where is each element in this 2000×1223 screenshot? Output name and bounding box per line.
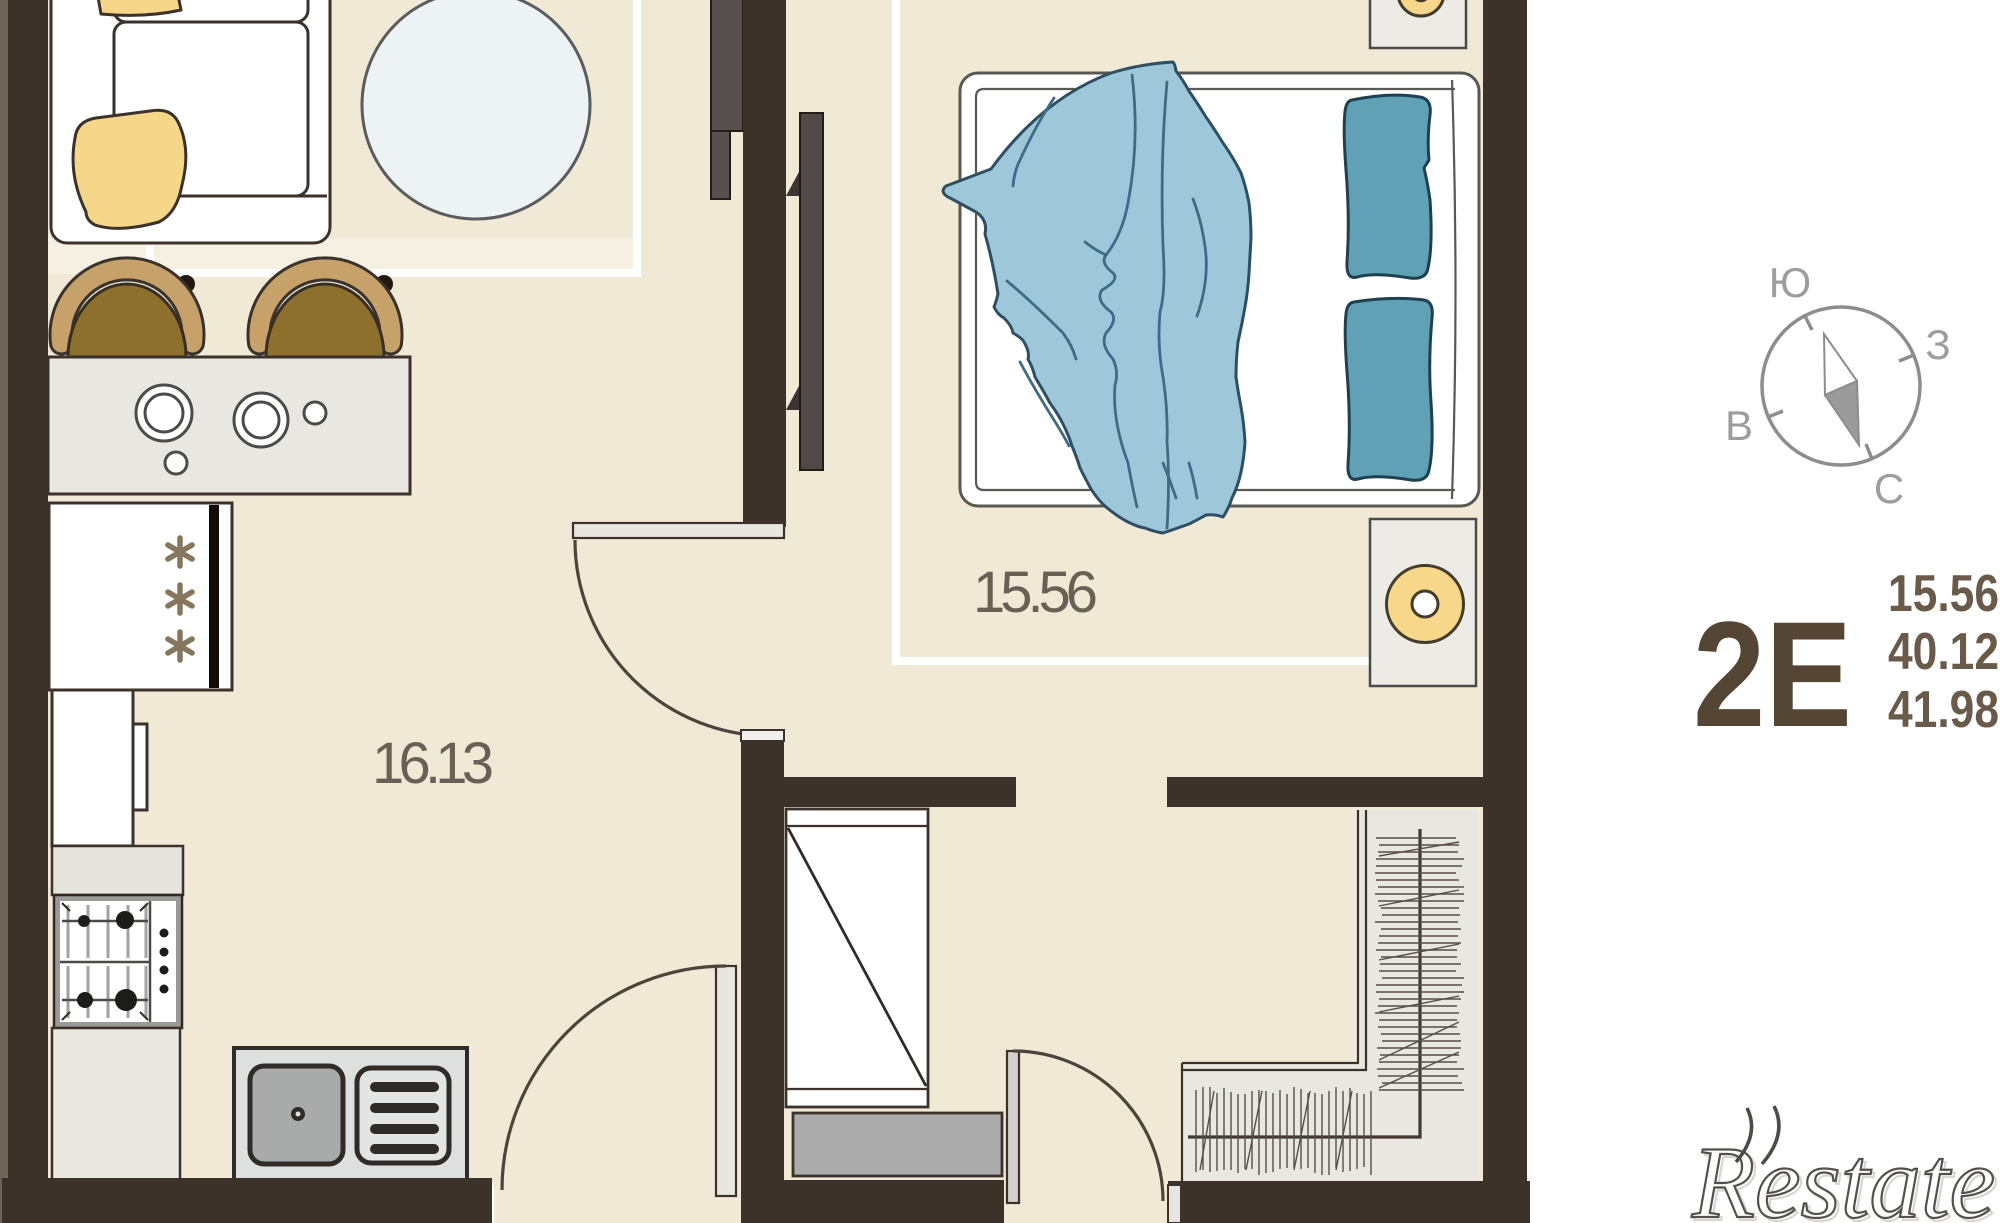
svg-text:41.98: 41.98 xyxy=(1888,681,1999,739)
svg-text:Ю: Ю xyxy=(1769,259,1811,306)
svg-text:40.12: 40.12 xyxy=(1888,623,1999,681)
svg-text:С: С xyxy=(1874,465,1904,512)
svg-text:15.56: 15.56 xyxy=(973,560,1098,625)
svg-text:15.56: 15.56 xyxy=(1888,565,1999,623)
svg-text:Restate: Restate xyxy=(1691,1126,1995,1223)
svg-text:16.13: 16.13 xyxy=(372,731,494,796)
svg-text:2Е: 2Е xyxy=(1693,590,1852,758)
svg-text:З: З xyxy=(1925,321,1950,368)
svg-text:В: В xyxy=(1725,402,1753,449)
